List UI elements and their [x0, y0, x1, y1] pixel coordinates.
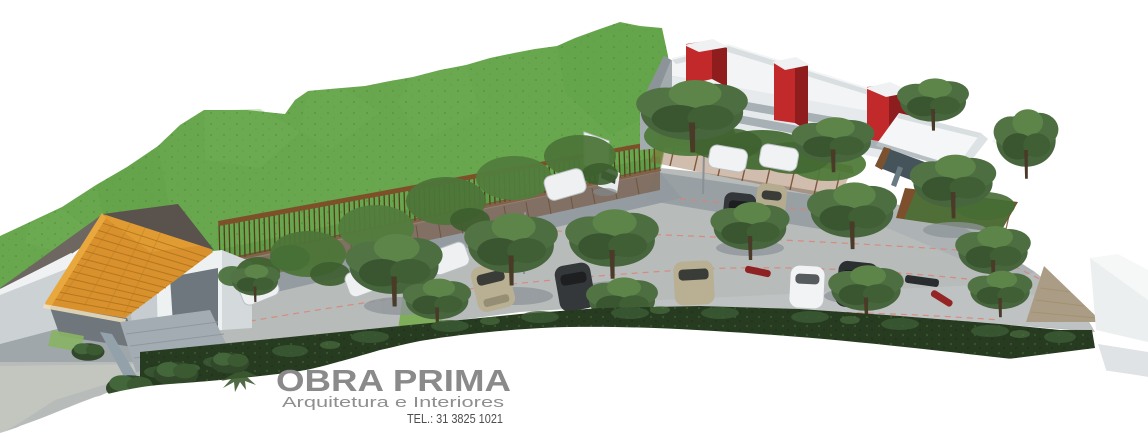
svg-text:TEL.: 31 3825 1021: TEL.: 31 3825 1021	[407, 412, 503, 426]
svg-text:OBRA PRIMA: OBRA PRIMA	[276, 363, 511, 398]
svg-text:Arquitetura e Interiores: Arquitetura e Interiores	[282, 395, 504, 411]
